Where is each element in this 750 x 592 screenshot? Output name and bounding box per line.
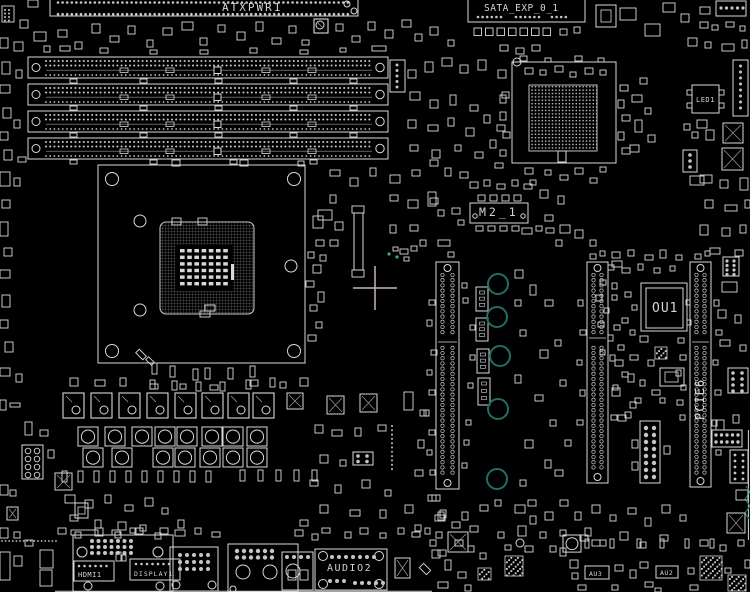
edge-part-pads bbox=[742, 454, 745, 457]
socket-center-caps bbox=[209, 269, 214, 272]
via-column bbox=[391, 455, 393, 457]
header-2x4-b bbox=[728, 368, 748, 393]
m2-pads bbox=[452, 208, 460, 214]
socket-center-caps bbox=[187, 282, 192, 285]
top-right-parts bbox=[700, 7, 710, 14]
atx-pad-row bbox=[98, 13, 101, 16]
socket-center-caps bbox=[202, 249, 207, 252]
via-column bbox=[391, 447, 393, 449]
bottom-io-bits bbox=[40, 550, 53, 568]
dimm-slot-3[interactable] bbox=[28, 111, 388, 132]
via-row-bottom-left bbox=[37, 540, 39, 542]
left-col-parts bbox=[2, 295, 10, 307]
via-row-bottom-left bbox=[30, 540, 32, 542]
mid-upper-scatter bbox=[484, 180, 490, 186]
atx-pad-row bbox=[103, 13, 106, 16]
io-small-parts bbox=[288, 570, 296, 580]
sata-pad-squares bbox=[497, 28, 505, 36]
left-col-parts bbox=[0, 270, 10, 278]
smd-scatter-ne bbox=[500, 150, 506, 156]
capacitor bbox=[200, 448, 220, 467]
corner-part-pads bbox=[4, 9, 6, 11]
right-of-dimm-pads bbox=[396, 86, 399, 89]
atx-pad-row bbox=[213, 1, 216, 4]
lan-pads bbox=[256, 555, 260, 559]
label-display1[interactable]: DISPLAY1 bbox=[134, 570, 173, 578]
mid-lower-scatter bbox=[315, 425, 323, 433]
bottom-mid-scatter bbox=[462, 512, 468, 520]
pcb-board-view: ATXPWR1SATA_EXP_0_1M2_1OU1PCIE6LED1HDMI1… bbox=[0, 0, 750, 592]
dip-pads bbox=[644, 426, 648, 430]
sata-pads bbox=[477, 16, 480, 19]
socket-mount-holes bbox=[134, 215, 146, 227]
smd-scatter-ne bbox=[460, 65, 468, 73]
atx-pad-row bbox=[71, 13, 74, 16]
mid-lower-scatter bbox=[404, 392, 413, 410]
via-row-bottom-left bbox=[12, 540, 14, 542]
chipset-scatter bbox=[545, 58, 551, 62]
sata-pad-squares bbox=[509, 28, 517, 36]
sata-pads bbox=[500, 16, 503, 19]
atx-pad-row bbox=[204, 1, 207, 4]
socket-bottom-pads bbox=[150, 380, 155, 389]
ou1-scatter bbox=[612, 252, 620, 258]
edge-connector-pads bbox=[739, 77, 742, 80]
teal-test-points bbox=[387, 252, 390, 255]
atx-pad-row bbox=[209, 1, 212, 4]
fiducial-block bbox=[700, 556, 723, 580]
slot-gap-scatter bbox=[520, 330, 526, 336]
hdmi-block-pads bbox=[116, 545, 120, 549]
left-of-dimm-parts bbox=[16, 70, 22, 78]
socket-bottom-pads bbox=[172, 381, 177, 390]
atx-pad-row bbox=[71, 1, 74, 4]
bottom-right-scatter bbox=[688, 568, 694, 574]
audio2-holes bbox=[319, 580, 328, 589]
left-col-parts bbox=[25, 540, 33, 546]
socket-center-caps bbox=[216, 262, 221, 265]
atx-pad-row bbox=[209, 13, 212, 16]
label-au2[interactable]: AU2 bbox=[660, 569, 673, 577]
right-edge-parts bbox=[706, 130, 714, 140]
slot1-side-parts bbox=[427, 450, 432, 455]
mid-upper-scatter bbox=[412, 170, 420, 176]
bottom-right-scatter bbox=[680, 515, 686, 521]
header-rings bbox=[25, 472, 31, 478]
label-hdmi1[interactable]: HDMI1 bbox=[78, 571, 102, 579]
led1-pins bbox=[719, 90, 724, 95]
label-au3[interactable]: AU3 bbox=[589, 570, 602, 578]
vrm-choke bbox=[175, 393, 196, 418]
slot-gap-scatter bbox=[545, 460, 551, 468]
chipset-scatter bbox=[575, 168, 583, 174]
smd-scatter-top bbox=[300, 50, 308, 54]
teal-edge-trace bbox=[745, 486, 750, 519]
header-pads bbox=[740, 371, 744, 375]
header-rings bbox=[25, 448, 31, 454]
m2-pads bbox=[502, 195, 509, 201]
capacitor bbox=[223, 427, 243, 446]
usb-header-pads bbox=[356, 460, 360, 464]
mid-lower-scatter bbox=[105, 495, 111, 503]
atx-pad-row bbox=[117, 1, 120, 4]
hdmi-block-pads bbox=[123, 551, 127, 555]
mid-upper-scatter bbox=[430, 160, 438, 166]
header-2x4-pads bbox=[732, 268, 735, 271]
chipset-scatter bbox=[570, 72, 576, 77]
slot1-side-parts bbox=[429, 390, 435, 395]
bottom-io-bits bbox=[458, 572, 466, 578]
hdmi-block-holes bbox=[77, 547, 87, 557]
mid-lower-scatter bbox=[385, 490, 391, 496]
dip-pads bbox=[644, 440, 648, 444]
corner-connector-pads bbox=[725, 6, 728, 9]
corner-connector-pads bbox=[736, 6, 739, 9]
mid-lower-scatter bbox=[380, 510, 386, 518]
corner-part-pads bbox=[8, 13, 10, 15]
ou1-scatter bbox=[670, 266, 675, 271]
socket-center-caps bbox=[194, 275, 199, 278]
ou1-scatter bbox=[608, 335, 613, 341]
socket-right-parts bbox=[306, 281, 314, 287]
dip-pads bbox=[644, 454, 648, 458]
chipset-scatter bbox=[635, 120, 642, 132]
hdmi-block-pads bbox=[97, 539, 101, 543]
smd-ic bbox=[723, 123, 743, 143]
header-2x4-pads bbox=[732, 259, 735, 262]
smd-scatter-top bbox=[352, 36, 360, 42]
header-2x4-pads bbox=[725, 273, 728, 276]
chipset-scatter bbox=[622, 148, 630, 154]
slot23-side-parts bbox=[680, 415, 685, 420]
io2-pads bbox=[199, 553, 203, 557]
slot23-side-parts bbox=[677, 400, 683, 405]
smd-scatter-ne bbox=[500, 95, 506, 103]
socket-mount-holes bbox=[106, 345, 119, 358]
bottom-right-scatter bbox=[630, 570, 636, 578]
bottom-right-scatter bbox=[645, 582, 653, 587]
smd-ic bbox=[7, 507, 18, 520]
header-5x2 bbox=[712, 430, 742, 447]
socket-center-caps bbox=[202, 256, 207, 259]
sata-pads bbox=[565, 16, 568, 19]
dimm-slot-4[interactable] bbox=[28, 138, 388, 159]
bottom-right-scatter bbox=[710, 539, 714, 548]
pcie-slot-6[interactable] bbox=[690, 262, 711, 487]
smd-scatter-top bbox=[415, 34, 422, 41]
left-col-parts bbox=[14, 532, 20, 538]
slot23-side-parts bbox=[613, 385, 618, 390]
edge-connector-pads bbox=[739, 83, 742, 86]
smd-ic bbox=[448, 532, 468, 552]
bottom-mid-scatter bbox=[438, 550, 446, 556]
dimm-gap-parts bbox=[290, 133, 297, 137]
via-row-bottom-left bbox=[55, 540, 57, 542]
right-col-parts bbox=[705, 200, 713, 208]
slot1-side-parts bbox=[464, 440, 469, 445]
audio2-pads bbox=[365, 555, 369, 559]
socket-bottom-pads bbox=[152, 363, 157, 374]
vrm-choke bbox=[63, 393, 84, 418]
smd-scatter-top bbox=[218, 25, 225, 32]
mid-upper-scatter bbox=[512, 180, 518, 186]
smd-scatter-top bbox=[368, 22, 375, 30]
dimm-gap-parts bbox=[140, 106, 147, 110]
via-row-bottom-left bbox=[19, 540, 21, 542]
top-right-parts bbox=[722, 44, 734, 51]
ou1-scatter bbox=[618, 345, 624, 350]
atx-pad-row bbox=[172, 1, 175, 4]
capacitor bbox=[175, 448, 195, 467]
hdmi1-pads bbox=[105, 565, 108, 568]
smd-scatter-ne bbox=[408, 70, 416, 78]
socket-right-parts bbox=[308, 252, 314, 258]
lan-pads bbox=[270, 549, 274, 553]
bottom-mid-scatter bbox=[480, 505, 488, 511]
socket-center-caps bbox=[194, 269, 199, 272]
lan-pads bbox=[242, 549, 246, 553]
dimm-gap-parts bbox=[70, 106, 77, 110]
corner-part-pads bbox=[8, 20, 10, 22]
sata-pads bbox=[515, 16, 518, 19]
socket-center-caps bbox=[187, 256, 192, 259]
slot-gap-scatter bbox=[530, 285, 536, 295]
teal-mount-holes bbox=[487, 307, 507, 327]
dimm-slot-1[interactable] bbox=[28, 57, 388, 78]
mid-lower-scatter bbox=[452, 522, 460, 528]
atx-pad-row bbox=[282, 13, 285, 16]
bottom-mid-scatter bbox=[530, 516, 536, 524]
right-of-dimm-pads bbox=[396, 64, 399, 67]
dip-pads bbox=[644, 433, 648, 437]
smd-scatter-ne bbox=[408, 120, 416, 128]
bottom-mid-scatter bbox=[515, 505, 525, 513]
bottom-right-scatter bbox=[578, 585, 586, 590]
left-col-parts bbox=[10, 490, 16, 496]
hdmi-block-pads bbox=[103, 539, 107, 543]
socket-center-caps bbox=[223, 269, 228, 272]
ou1-scatter bbox=[622, 318, 628, 323]
vrm-choke bbox=[91, 393, 112, 418]
bottom-mid-scatter bbox=[545, 512, 553, 520]
smd-ic bbox=[360, 394, 377, 412]
socket-right-parts bbox=[318, 292, 324, 302]
mid-upper-scatter bbox=[320, 255, 326, 261]
sata-pads bbox=[486, 16, 489, 19]
chipset-scatter bbox=[598, 58, 604, 62]
header-rings bbox=[25, 456, 31, 462]
atx-pad-row bbox=[117, 13, 120, 16]
left-col-parts bbox=[0, 400, 6, 410]
atx-pad-row bbox=[126, 1, 129, 4]
dimm-gap-parts bbox=[70, 79, 77, 83]
edge-part-pads bbox=[742, 478, 745, 481]
lan-holes bbox=[236, 565, 250, 579]
label-m2-1[interactable]: M2_1 bbox=[479, 205, 519, 219]
led1-pins bbox=[687, 103, 692, 108]
slot1-side-parts bbox=[468, 383, 473, 388]
socket-bottom-pads bbox=[205, 368, 210, 379]
bottom-mid-scatter bbox=[468, 546, 474, 552]
chipset-scatter bbox=[585, 68, 593, 74]
via-column bbox=[391, 468, 393, 470]
left-of-dimm-parts bbox=[0, 132, 8, 140]
socket-center-caps bbox=[194, 256, 199, 259]
mid-upper-scatter bbox=[497, 184, 505, 189]
slot1-side-parts bbox=[424, 410, 429, 416]
usb-header-pads bbox=[356, 454, 360, 458]
smd-ic bbox=[75, 503, 88, 518]
mid-upper-scatter bbox=[448, 252, 454, 257]
via-row-bottom-left bbox=[34, 540, 36, 542]
atx-pad-row bbox=[57, 1, 60, 4]
hdmi-block-pads bbox=[116, 539, 120, 543]
bottom-right-scatter bbox=[655, 588, 661, 592]
header-pads bbox=[725, 433, 728, 436]
smd-resistor-pack bbox=[476, 318, 488, 341]
bottom-right-scatter bbox=[700, 540, 708, 546]
atx-pad-row bbox=[140, 1, 143, 4]
smd-scatter-top bbox=[128, 26, 135, 34]
slot23-side-parts bbox=[716, 330, 722, 335]
label-ou1[interactable]: OU1 bbox=[652, 301, 678, 316]
dimm-gap-parts bbox=[310, 160, 317, 164]
io2-pads bbox=[178, 553, 182, 557]
dimm-slot-2[interactable] bbox=[28, 84, 388, 105]
sata-pad-squares bbox=[486, 28, 494, 36]
mid-upper-scatter bbox=[390, 195, 398, 201]
bottom-io-bits bbox=[0, 552, 10, 580]
display1-pads bbox=[162, 563, 165, 566]
label-audio2[interactable]: AUDIO2 bbox=[327, 563, 372, 574]
m2-holes bbox=[473, 214, 477, 218]
dip-pads bbox=[652, 433, 656, 437]
audio2-pads bbox=[342, 579, 346, 583]
slot23-side-parts bbox=[664, 446, 670, 454]
io2-pads bbox=[178, 560, 182, 564]
smd-scatter-top bbox=[150, 50, 157, 54]
sata-pads bbox=[481, 16, 484, 19]
hdmi1-pads bbox=[83, 565, 86, 568]
mid-upper-scatter bbox=[575, 230, 583, 238]
smd-scatter-top bbox=[272, 38, 281, 44]
lan-pads bbox=[263, 555, 267, 559]
edge-connector-pads bbox=[739, 101, 742, 104]
right-col-parts bbox=[735, 250, 743, 256]
slot-gap-scatter bbox=[545, 300, 553, 306]
io2-pads bbox=[185, 567, 189, 571]
mount-hole bbox=[516, 539, 524, 547]
left-of-dimm-parts bbox=[2, 62, 10, 74]
smd-scatter-top bbox=[75, 42, 82, 49]
edge-connector-pads bbox=[739, 71, 742, 74]
atx-pad-row bbox=[140, 13, 143, 16]
atx-pad-row bbox=[66, 13, 69, 16]
ou1-scatter bbox=[625, 292, 631, 297]
dimm-gap-parts bbox=[350, 133, 357, 137]
slot23-side-parts bbox=[578, 300, 583, 306]
slot23-side-parts bbox=[600, 251, 605, 256]
lan-pads bbox=[270, 555, 274, 559]
mid-upper-scatter bbox=[558, 196, 564, 204]
label-led1[interactable]: LED1 bbox=[696, 96, 715, 104]
label-atxpwr1[interactable]: ATXPWR1 bbox=[222, 1, 282, 14]
teal-mount-holes bbox=[488, 274, 508, 294]
slot-gap-scatter bbox=[540, 350, 548, 358]
slot23-side-parts bbox=[715, 390, 721, 395]
dimm-gap-parts bbox=[215, 133, 222, 137]
ou1-scatter bbox=[676, 255, 682, 260]
edge-connector-pads bbox=[739, 65, 742, 68]
socket-center-caps bbox=[202, 269, 207, 272]
smd-scatter-top bbox=[182, 22, 193, 30]
mid-upper-scatter bbox=[540, 190, 548, 198]
bottom-io-bits bbox=[322, 528, 330, 533]
label-sata-exp-0-1[interactable]: SATA_EXP_0_1 bbox=[484, 3, 559, 14]
atx-pad-row bbox=[149, 1, 152, 4]
pcie-x16-slot-1[interactable] bbox=[436, 262, 459, 489]
socket-center-caps bbox=[180, 269, 185, 272]
bottom-right-scatter bbox=[738, 540, 744, 546]
chipset-scatter bbox=[555, 66, 563, 72]
sata-pads bbox=[529, 16, 532, 19]
slot-gap-scatter bbox=[525, 440, 533, 448]
mid-lower-scatter bbox=[162, 508, 168, 514]
audio2-pads bbox=[337, 555, 341, 559]
header-pads bbox=[731, 440, 734, 443]
m2-pads bbox=[488, 226, 495, 231]
slot23-side-parts bbox=[716, 450, 721, 455]
mid-upper-scatter bbox=[393, 247, 398, 251]
smd-scatter-top bbox=[20, 20, 28, 28]
atx-pad-row bbox=[153, 1, 156, 4]
teal-mount-holes bbox=[490, 346, 510, 366]
slot1-side-parts bbox=[427, 320, 432, 326]
bottom-mid-scatter bbox=[540, 532, 546, 538]
atx-pad-row bbox=[112, 13, 115, 16]
atx-pad-row bbox=[121, 1, 124, 4]
sata-pad-squares bbox=[516, 48, 524, 54]
mosfet bbox=[314, 19, 328, 33]
boardview-stage: ATXPWR1SATA_EXP_0_1M2_1OU1PCIE6LED1HDMI1… bbox=[0, 0, 750, 592]
smd-ic bbox=[727, 513, 745, 533]
atx-pad-row bbox=[301, 13, 304, 16]
via-row-bottom-left bbox=[26, 540, 28, 542]
display1-pads bbox=[146, 563, 149, 566]
hdmi-block-holes bbox=[156, 582, 164, 590]
bottom-right-scatter bbox=[615, 565, 623, 571]
teal-mount-holes bbox=[488, 399, 508, 419]
ou1-scatter bbox=[638, 264, 643, 270]
bottom-io-bits bbox=[345, 532, 351, 538]
top-right-parts bbox=[681, 14, 689, 22]
atx-pad-row bbox=[80, 13, 83, 16]
socket-below-strip bbox=[280, 382, 286, 388]
mid-upper-scatter bbox=[556, 240, 562, 246]
atx-pad-row bbox=[337, 1, 340, 4]
socket-center-caps bbox=[202, 275, 207, 278]
audio2-pads bbox=[351, 555, 355, 559]
atx-pad-row bbox=[172, 13, 175, 16]
smd-scatter-top bbox=[147, 40, 153, 47]
right-col-parts bbox=[740, 225, 746, 233]
vrm-pad-row bbox=[174, 471, 179, 482]
smd-scatter-top bbox=[250, 48, 257, 53]
label-pcie6[interactable]: PCIE6 bbox=[693, 379, 707, 420]
slot1-side-parts bbox=[430, 470, 435, 475]
m2-pads bbox=[476, 226, 483, 231]
bottom-io-bits bbox=[380, 533, 386, 538]
